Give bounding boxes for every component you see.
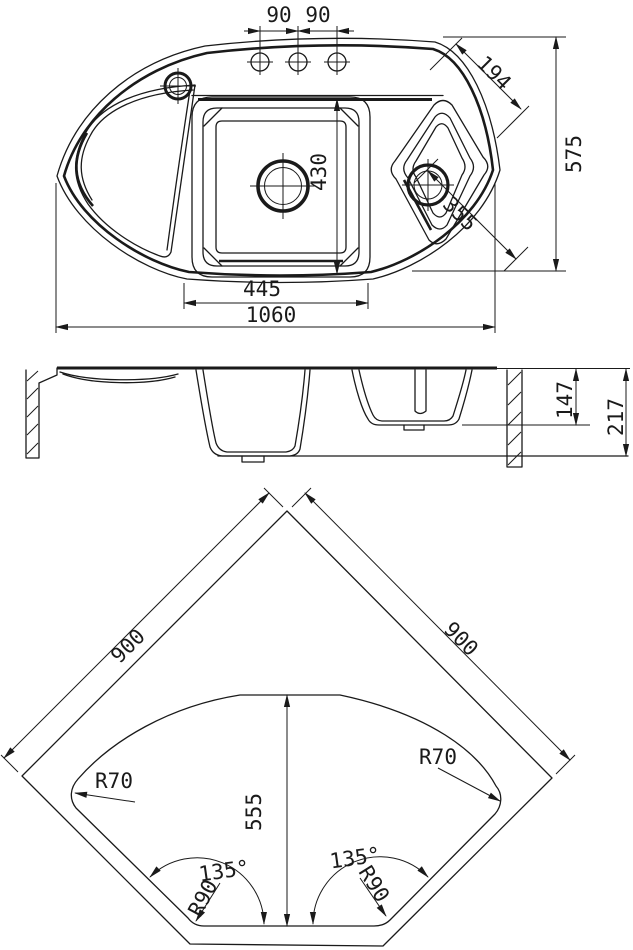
dim-small-bowl-width: 194 — [430, 38, 529, 138]
cutout-outline — [71, 695, 500, 926]
dim-faucet-pitch-left-label: 90 — [266, 3, 291, 27]
dim-430-label: 430 — [307, 153, 331, 191]
dim-555-label: 555 — [242, 793, 266, 831]
dim-main-bowl-length: 430 — [307, 99, 337, 274]
dim-147-label: 147 — [553, 381, 577, 419]
main-bowl-profile — [196, 370, 310, 462]
faucet-hole-center — [285, 49, 311, 75]
drainboard-outline — [76, 85, 195, 257]
dim-cutout-depth: 555 — [242, 695, 287, 926]
drainboard-shadow-band — [76, 133, 93, 206]
dim-r70-left-label: R70 — [95, 769, 133, 793]
main-bowl — [192, 97, 370, 277]
dim-radius-left: R70 — [75, 769, 135, 802]
faucet-hole-right — [324, 49, 350, 75]
corner-drain-hole — [160, 68, 196, 104]
drainboard-profile — [60, 372, 178, 383]
technical-drawing: 90 90 194 575 430 355 — [0, 0, 633, 950]
right-support-bracket — [507, 370, 522, 467]
cutout-template-view: 900 900 555 R70 R70 135° — [0, 480, 633, 950]
dim-side-right: 900 — [292, 488, 575, 774]
dim-faucet-pitch-right-label: 90 — [305, 3, 330, 27]
dim-900-right-label: 900 — [439, 617, 483, 661]
dim-overall-height: 217 — [604, 369, 628, 456]
small-bowl-profile — [352, 370, 472, 430]
dim-faucet-pitch: 90 90 — [244, 3, 354, 51]
dim-575-label: 575 — [562, 135, 586, 173]
sink-top-view: 90 90 194 575 430 355 — [0, 0, 633, 352]
dim-1060-label: 1060 — [246, 303, 297, 327]
dim-445-label: 445 — [243, 277, 281, 301]
sink-section-view: 147 217 — [0, 355, 633, 477]
dim-corner-radius-right: R90 — [354, 862, 394, 916]
dim-r70-right-label: R70 — [419, 745, 457, 769]
dim-small-bowl-depth: 147 — [462, 369, 590, 425]
left-support-bracket — [26, 368, 57, 458]
drainboard-right-edge — [167, 90, 190, 250]
dim-side-left: 900 — [1, 488, 283, 772]
dim-900-left-label: 900 — [106, 624, 150, 668]
dim-217-label: 217 — [604, 398, 628, 436]
faucet-hole-left — [247, 49, 273, 75]
